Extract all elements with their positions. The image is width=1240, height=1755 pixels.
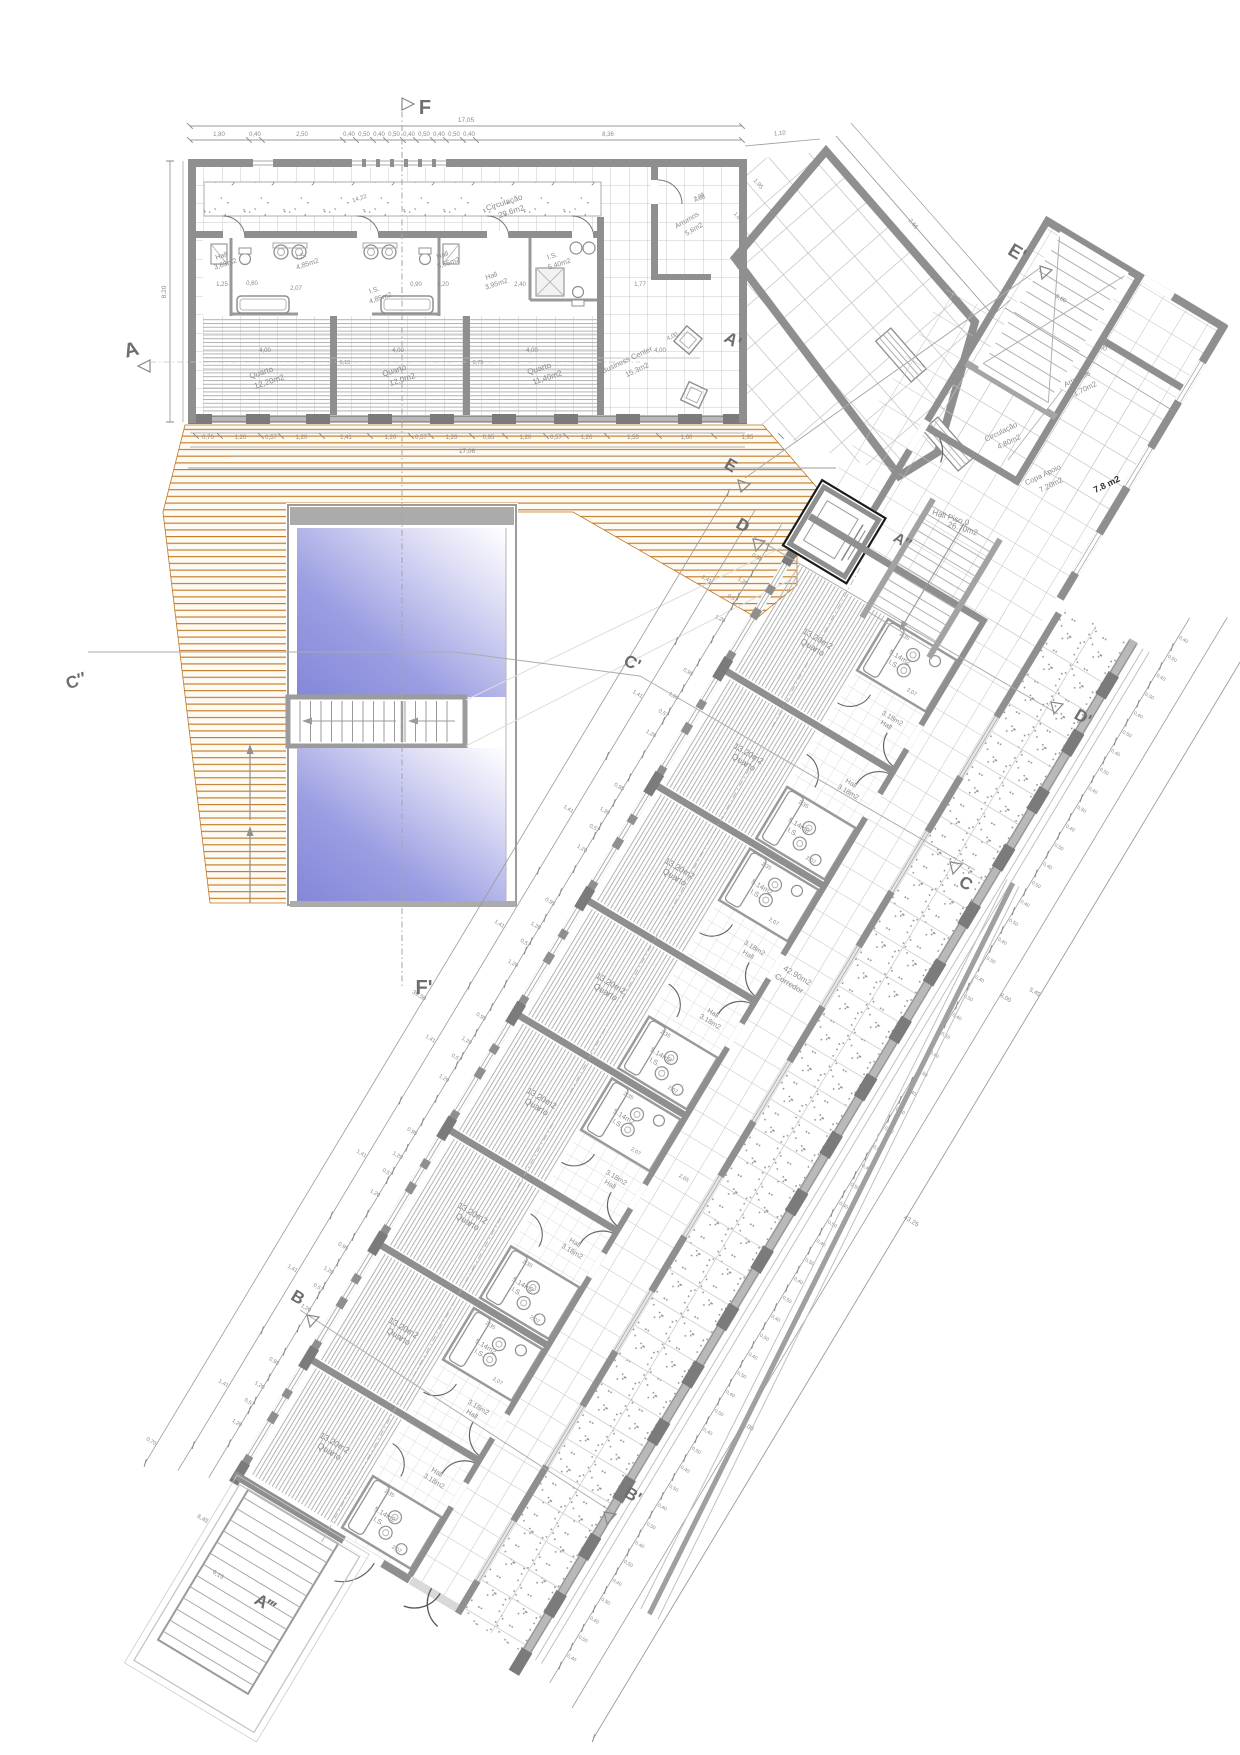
svg-text:0,50: 0,50	[418, 132, 430, 138]
svg-text:1,41: 1,41	[340, 435, 352, 441]
svg-text:0,95: 0,95	[613, 782, 625, 793]
svg-text:2,07: 2,07	[290, 286, 302, 292]
svg-text:0,57: 0,57	[312, 1283, 324, 1294]
svg-text:0,40: 0,40	[611, 1578, 623, 1588]
svg-text:0,40: 0,40	[792, 1276, 804, 1286]
svg-text:0,75: 0,75	[473, 360, 484, 366]
svg-text:0,50: 0,50	[1166, 654, 1178, 664]
svg-text:17,05: 17,05	[458, 117, 475, 124]
svg-text:0,40: 0,40	[403, 132, 415, 138]
svg-text:0,50: 0,50	[1053, 842, 1065, 852]
svg-text:0,50: 0,50	[622, 1559, 634, 1569]
svg-text:0,50: 0,50	[985, 956, 997, 966]
svg-text:4,00: 4,00	[526, 348, 538, 354]
svg-text:1,80: 1,80	[213, 132, 225, 138]
svg-text:0,57: 0,57	[657, 708, 669, 719]
svg-text:0,40: 0,40	[1178, 635, 1190, 645]
svg-text:0,57: 0,57	[519, 938, 531, 949]
svg-text:0,95: 0,95	[406, 1127, 418, 1138]
svg-text:0,50: 0,50	[645, 1521, 657, 1531]
svg-text:1,20: 1,20	[322, 1265, 334, 1276]
svg-text:1,25: 1,25	[216, 282, 228, 288]
svg-text:0,40: 0,40	[770, 1314, 782, 1324]
svg-text:1,20: 1,20	[438, 1073, 450, 1084]
svg-text:1,20: 1,20	[235, 435, 247, 441]
svg-text:4,00: 4,00	[654, 348, 666, 354]
svg-text:0,40: 0,40	[249, 132, 261, 138]
svg-text:0,40: 0,40	[996, 937, 1008, 947]
svg-text:1,53: 1,53	[627, 435, 639, 441]
svg-text:0,50: 0,50	[577, 1634, 589, 1644]
svg-text:0,50: 0,50	[1098, 767, 1110, 777]
svg-text:0,50: 0,50	[781, 1295, 793, 1305]
svg-text:1,20: 1,20	[520, 435, 532, 441]
svg-text:1,20: 1,20	[296, 435, 308, 441]
svg-text:1,20: 1,20	[507, 959, 519, 970]
svg-text:1,77: 1,77	[634, 282, 646, 288]
svg-text:0,50: 0,50	[1144, 692, 1156, 702]
svg-text:0,57: 0,57	[265, 435, 277, 441]
svg-text:1,95: 1,95	[742, 435, 754, 441]
svg-text:0,40: 0,40	[634, 1540, 646, 1550]
svg-text:F': F'	[416, 977, 433, 999]
svg-text:0,40: 0,40	[679, 1465, 691, 1475]
svg-text:0,50: 0,50	[736, 1370, 748, 1380]
svg-text:6,45: 6,45	[196, 1514, 210, 1525]
svg-text:4,00: 4,00	[259, 348, 271, 354]
svg-text:1,20: 1,20	[576, 844, 588, 855]
svg-text:0,95: 0,95	[544, 897, 556, 908]
svg-text:0,57: 0,57	[550, 435, 562, 441]
svg-text:1,60: 1,60	[681, 435, 693, 441]
svg-text:0,50: 0,50	[1030, 880, 1042, 890]
svg-text:0,95: 0,95	[483, 435, 495, 441]
svg-text:0,50: 0,50	[758, 1333, 770, 1343]
svg-text:0,40: 0,40	[463, 132, 475, 138]
svg-text:0,40: 0,40	[702, 1427, 714, 1437]
svg-text:0,95: 0,95	[682, 667, 694, 678]
svg-text:1,20: 1,20	[385, 435, 397, 441]
svg-text:1,20: 1,20	[253, 1380, 265, 1391]
svg-text:0,40: 0,40	[724, 1389, 736, 1399]
svg-text:0,40: 0,40	[747, 1352, 759, 1362]
svg-text:0,57: 0,57	[588, 823, 600, 834]
svg-text:0,50: 0,50	[804, 1257, 816, 1267]
svg-text:0,15: 0,15	[340, 360, 351, 366]
svg-text:0,40: 0,40	[1019, 899, 1031, 909]
svg-text:0,57: 0,57	[243, 1397, 255, 1408]
svg-text:1,20: 1,20	[598, 806, 610, 817]
svg-text:1,10: 1,10	[774, 130, 787, 137]
svg-text:0,90: 0,90	[410, 282, 422, 288]
svg-text:0,40: 0,40	[566, 1653, 578, 1663]
svg-text:0,95: 0,95	[337, 1241, 349, 1252]
svg-text:0,40: 0,40	[373, 132, 385, 138]
svg-text:0,50: 0,50	[1121, 729, 1133, 739]
svg-text:0,40: 0,40	[588, 1616, 600, 1626]
svg-text:0,50: 0,50	[358, 132, 370, 138]
svg-text:6,00: 6,00	[999, 993, 1013, 1004]
svg-text:43,25: 43,25	[902, 1214, 920, 1229]
svg-text:0,40: 0,40	[1110, 748, 1122, 758]
svg-text:C′′: C′′	[63, 668, 89, 693]
svg-text:0,70: 0,70	[202, 435, 214, 441]
svg-text:1,20: 1,20	[529, 921, 541, 932]
svg-text:1,20: 1,20	[437, 282, 449, 288]
svg-text:2,50: 2,50	[296, 132, 308, 138]
svg-text:8,20: 8,20	[161, 285, 168, 298]
svg-text:0,95: 0,95	[475, 1012, 487, 1023]
svg-text:0,40: 0,40	[1064, 824, 1076, 834]
svg-text:5,45: 5,45	[1028, 987, 1042, 998]
svg-text:0,57: 0,57	[450, 1053, 462, 1064]
svg-text:A: A	[122, 338, 142, 363]
svg-text:F: F	[419, 97, 431, 119]
svg-text:0,50: 0,50	[448, 132, 460, 138]
svg-text:0,40: 0,40	[433, 132, 445, 138]
svg-text:0,40: 0,40	[1132, 710, 1144, 720]
svg-text:0,50: 0,50	[690, 1446, 702, 1456]
svg-text:1,20: 1,20	[231, 1418, 243, 1429]
svg-text:0,40: 0,40	[1087, 786, 1099, 796]
svg-text:1,20: 1,20	[446, 435, 458, 441]
svg-text:0,40: 0,40	[343, 132, 355, 138]
svg-text:0,50: 0,50	[668, 1484, 680, 1494]
svg-text:0,60: 0,60	[246, 281, 258, 287]
svg-text:4,00: 4,00	[392, 348, 404, 354]
svg-text:0,50: 0,50	[713, 1408, 725, 1418]
svg-text:1,20: 1,20	[714, 614, 726, 625]
svg-text:1,20: 1,20	[460, 1036, 472, 1047]
svg-text:0,57: 0,57	[381, 1168, 393, 1179]
svg-text:1,20: 1,20	[300, 1303, 312, 1314]
svg-text:1,20: 1,20	[391, 1151, 403, 1162]
svg-text:2,40: 2,40	[514, 282, 526, 288]
svg-text:0,50: 0,50	[600, 1597, 612, 1607]
svg-text:1,20: 1,20	[369, 1188, 381, 1199]
svg-text:0,50: 0,50	[1076, 805, 1088, 815]
svg-text:0,40: 0,40	[1042, 861, 1054, 871]
svg-text:0,40: 0,40	[656, 1502, 668, 1512]
svg-text:0,40: 0,40	[1155, 673, 1167, 683]
svg-text:0,50: 0,50	[1008, 918, 1020, 928]
svg-text:0,95: 0,95	[268, 1356, 280, 1367]
svg-text:0,50: 0,50	[388, 132, 400, 138]
svg-text:8,36: 8,36	[602, 132, 614, 138]
svg-text:17,06: 17,06	[459, 448, 476, 455]
svg-text:1,20: 1,20	[645, 729, 657, 740]
svg-text:0,40: 0,40	[815, 1238, 827, 1248]
svg-text:C': C'	[621, 651, 644, 675]
svg-text:0,57: 0,57	[415, 435, 427, 441]
svg-text:1,20: 1,20	[581, 435, 593, 441]
